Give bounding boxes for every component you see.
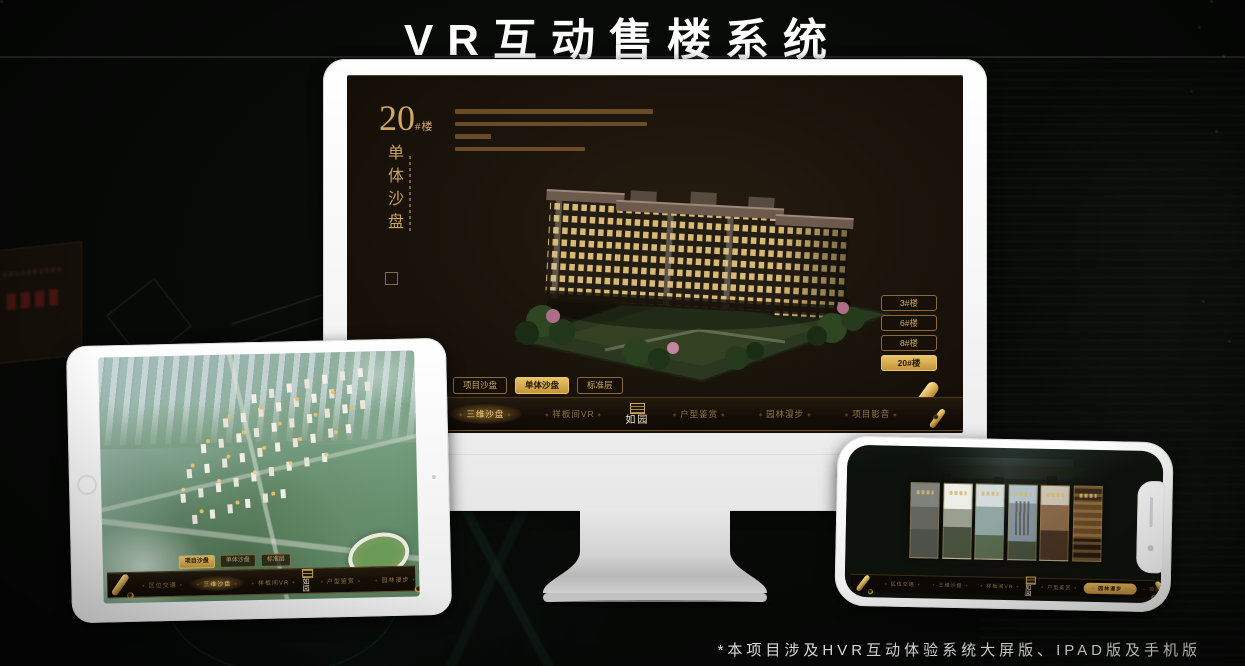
phone-device: 区位交通 三维沙盘 样板间VR 如园 户型鉴赏 园林漫步 项目影音 — [834, 436, 1173, 613]
nav-showroom-vr[interactable]: 样板间VR — [244, 574, 302, 590]
seal-stamp-icon — [385, 272, 398, 285]
building-label: 20#楼 单体沙盘 — [379, 100, 434, 262]
bg-window-lights — [0, 0, 3, 3]
logo-mark-icon — [1025, 576, 1035, 584]
gallery-card[interactable] — [974, 483, 1005, 560]
building-3d-render — [487, 136, 912, 391]
nav-showroom-vr[interactable]: 样板间VR — [535, 404, 612, 424]
nav-showroom-vr[interactable]: 样板间VR — [974, 580, 1025, 592]
logo-mark-icon — [630, 403, 645, 414]
gallery-card[interactable] — [1072, 485, 1103, 562]
floor-button-6[interactable]: 6#楼 — [881, 315, 937, 331]
speaker-grille-icon — [1149, 497, 1153, 527]
brand-logo: 如园 — [625, 403, 649, 426]
monitor-stand — [535, 509, 775, 609]
nav-3d-sandtable[interactable]: 三维沙盘 — [926, 579, 974, 591]
scroll-ornament-mini-icon[interactable] — [927, 408, 940, 421]
sub-tab-bar: 项目沙盘 单体沙盘 标准层 — [453, 377, 623, 394]
nav-3d-sandtable[interactable]: 三维沙盘 — [190, 575, 245, 591]
scroll-ornament-icon[interactable] — [413, 566, 420, 593]
nav-unit-gallery[interactable]: 户型鉴赏 — [313, 572, 368, 588]
nav-garden-walk[interactable]: 园林漫步 — [749, 404, 822, 424]
tab-project-sandtable[interactable]: 项目沙盘 — [453, 377, 507, 394]
tablet-device: 项目沙盘 单体沙盘 标准层 区位交通 三维沙盘 样板间VR 如园 户型鉴赏 园林… — [66, 338, 452, 624]
tab-standard-floor[interactable]: 标准层 — [577, 377, 623, 394]
tablet-sub-tab-bar: 项目沙盘 单体沙盘 标准层 — [179, 553, 291, 569]
footnote-caption: *本项目涉及HVR互动体验系统大屏版、IPAD版及手机版 — [718, 639, 1201, 660]
building-number: 20#楼 — [379, 100, 434, 136]
nav-garden-walk-active[interactable]: 园林漫步 — [1083, 583, 1137, 595]
tab-single-sandtable[interactable]: 单体沙盘 — [515, 377, 569, 394]
nav-3d-sandtable[interactable]: 三维沙盘 — [449, 404, 522, 424]
nav-unit-gallery[interactable]: 户型鉴赏 — [1035, 582, 1083, 594]
phone-screen: 区位交通 三维沙盘 样板间VR 如园 户型鉴赏 园林漫步 项目影音 — [844, 445, 1163, 604]
scroll-ornament-icon[interactable] — [855, 574, 875, 595]
front-camera-icon — [1147, 545, 1153, 551]
tab-standard-floor[interactable]: 标准层 — [261, 553, 291, 567]
nav-location-traffic[interactable]: 区位交通 — [135, 576, 190, 592]
floor-button-20-active[interactable]: 20#楼 — [881, 355, 937, 371]
logo-mark-icon — [302, 569, 313, 578]
gallery-card[interactable] — [1039, 485, 1070, 562]
tablet-screen: 项目沙盘 单体沙盘 标准层 区位交通 三维沙盘 样板间VR 如园 户型鉴赏 园林… — [98, 350, 419, 603]
gallery-card[interactable] — [942, 483, 973, 560]
gallery-card[interactable] — [909, 482, 940, 559]
tablet-camera-icon — [432, 474, 436, 478]
phone-notch — [1136, 481, 1165, 574]
nav-garden-walk[interactable]: 园林漫步 — [368, 571, 420, 587]
nav-project-media[interactable]: 项目影音 — [835, 404, 908, 424]
scroll-ornament-icon[interactable] — [109, 572, 135, 599]
tab-project-sandtable[interactable]: 项目沙盘 — [179, 555, 215, 569]
scene-gallery — [909, 482, 1102, 562]
brand-logo: 如园 — [1025, 576, 1035, 597]
tab-single-sandtable[interactable]: 单体沙盘 — [220, 554, 256, 568]
nav-unit-gallery[interactable]: 户型鉴赏 — [663, 404, 736, 424]
gallery-card[interactable] — [1007, 484, 1038, 561]
building-subtitle-vertical: 单体沙盘 — [381, 144, 405, 262]
floor-button-8[interactable]: 8#楼 — [881, 335, 937, 351]
floor-button-group: 3#楼 6#楼 8#楼 20#楼 — [881, 295, 937, 371]
subtitle-english-decor — [409, 156, 411, 234]
promo-canvas: VR互动售楼系统 20#楼 单体沙盘 — [0, 0, 1245, 666]
brand-logo: 如园 — [302, 569, 314, 593]
floor-button-3[interactable]: 3#楼 — [881, 295, 937, 311]
nav-location-traffic[interactable]: 区位交通 — [879, 578, 927, 590]
fog-overlay — [324, 350, 420, 416]
